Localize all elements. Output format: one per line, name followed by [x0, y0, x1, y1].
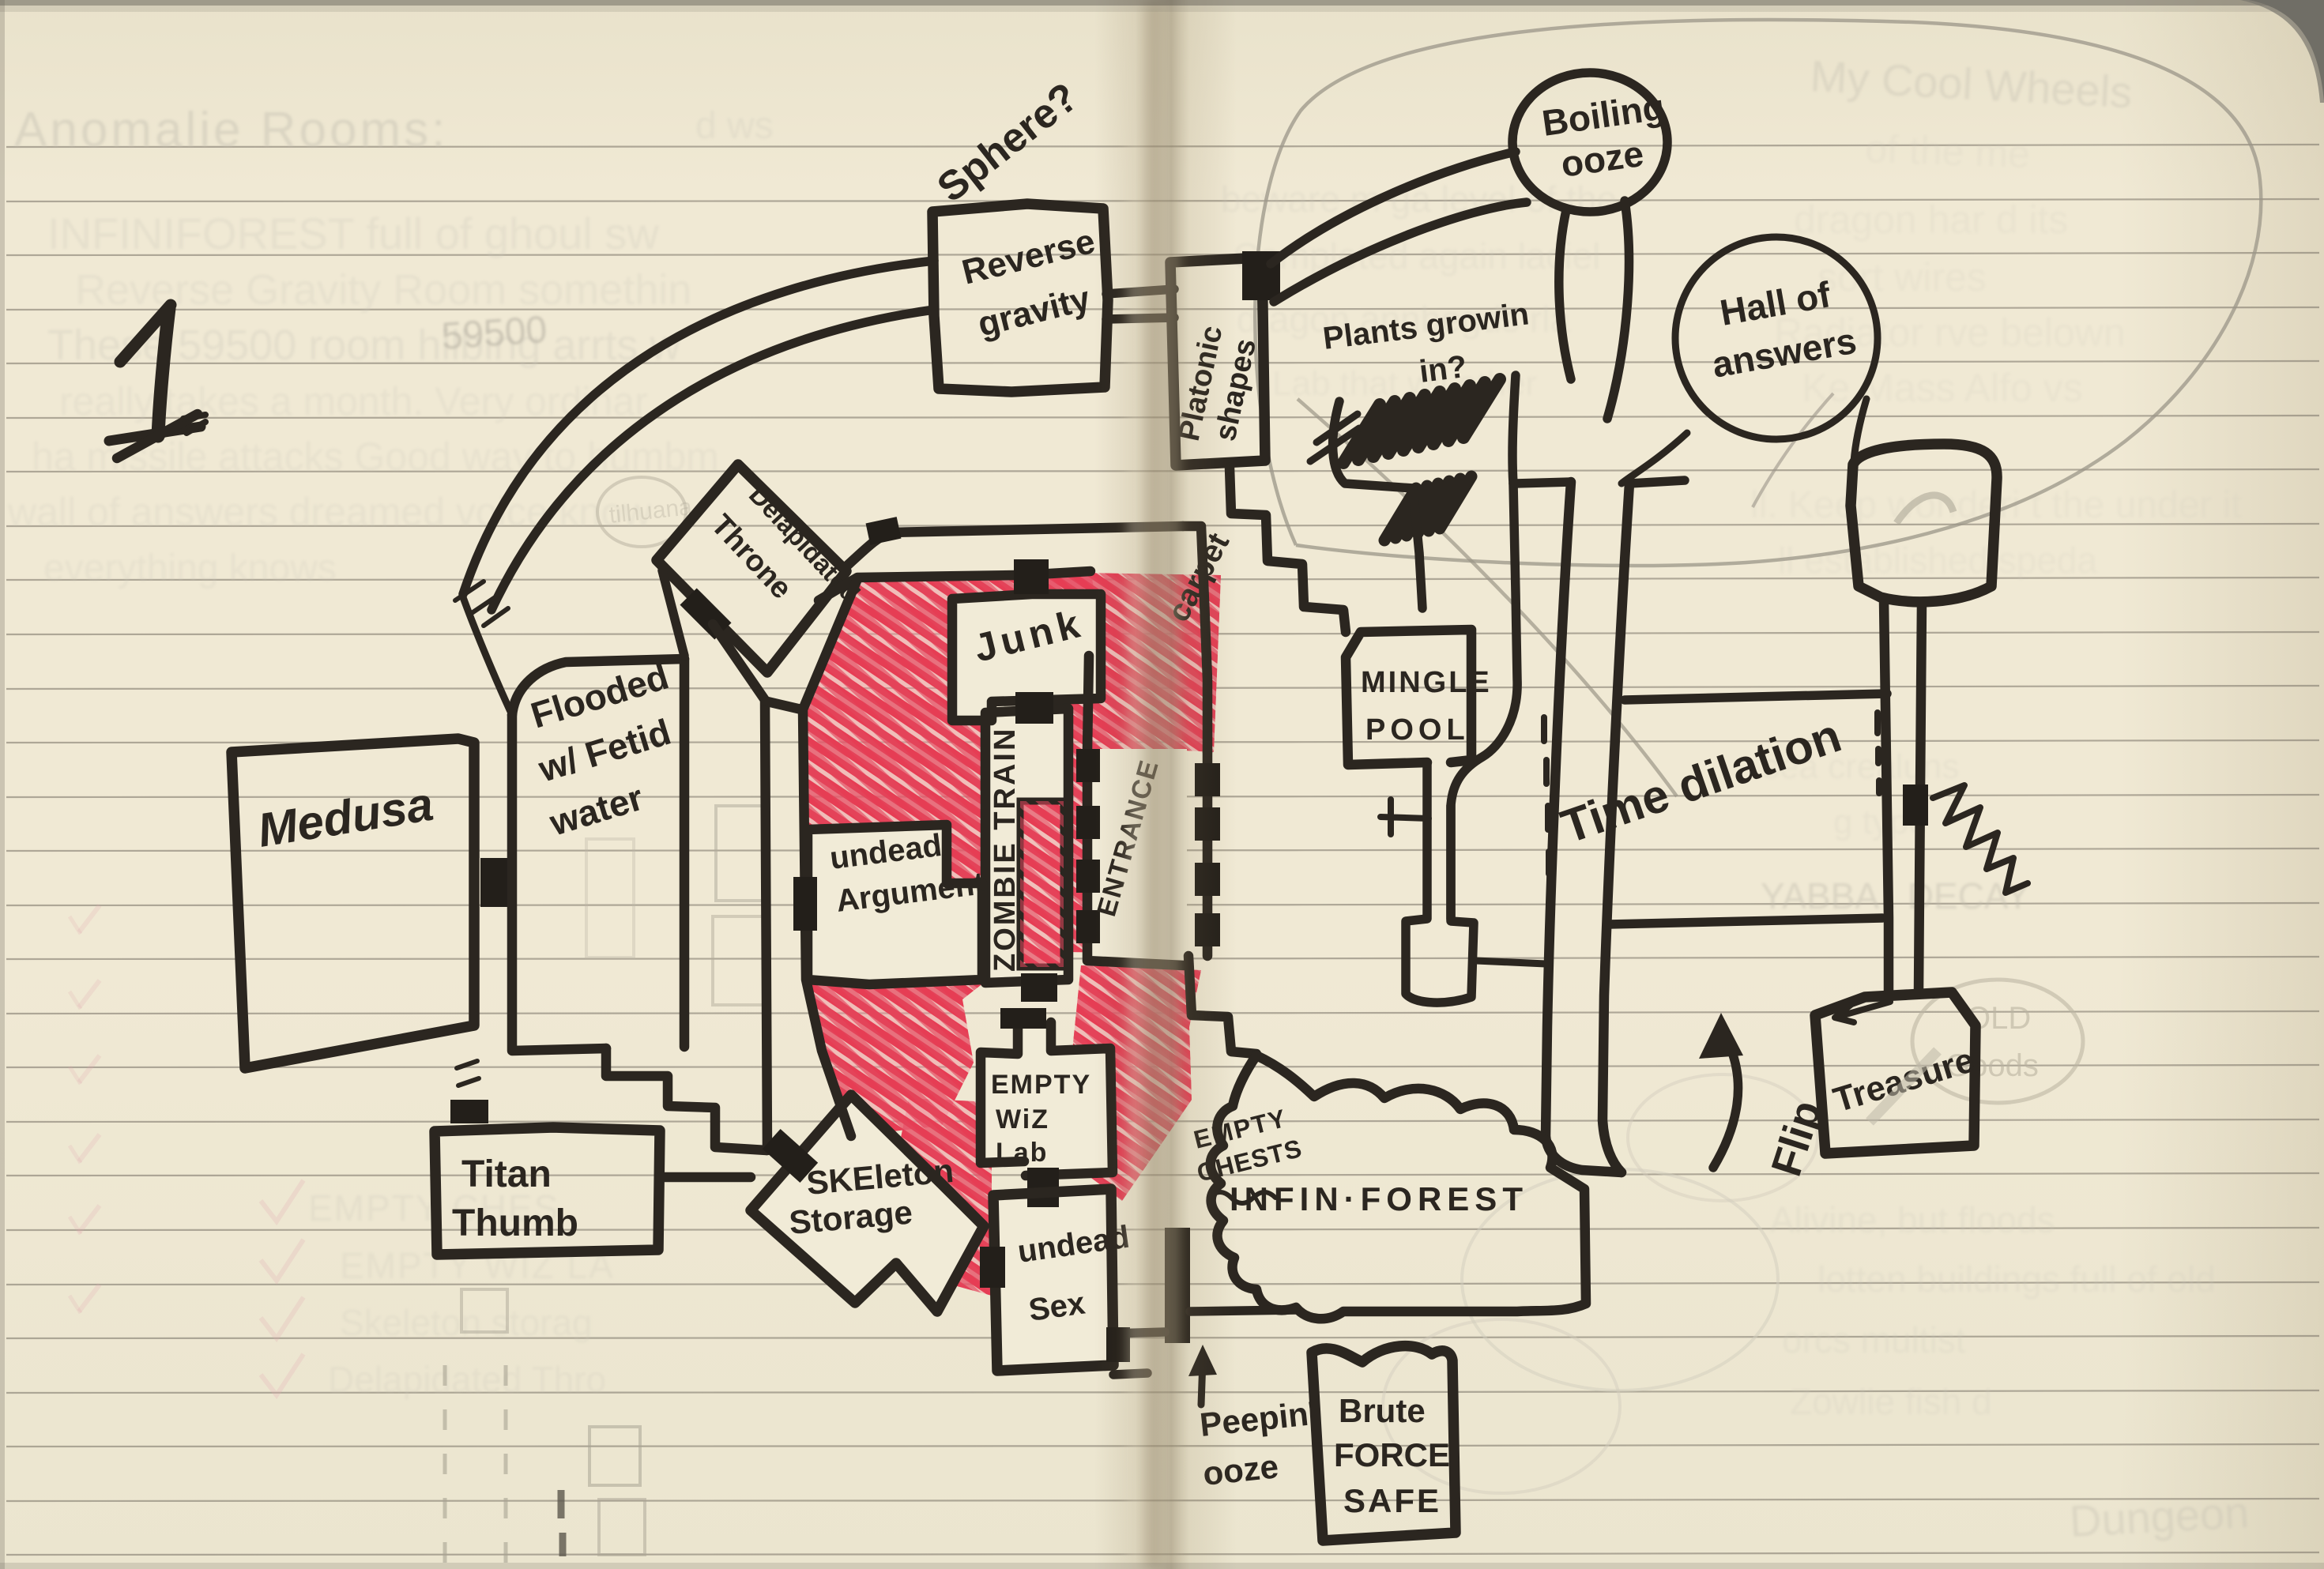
- svg-text:Zowlie fish d: Zowlie fish d: [1790, 1381, 1992, 1422]
- svg-text:of the me: of the me: [1865, 126, 2031, 176]
- svg-text:Thumb: Thumb: [452, 1202, 578, 1244]
- svg-text:MINGLE: MINGLE: [1361, 666, 1492, 699]
- svg-text:Ke Mass Alfo vs: Ke Mass Alfo vs: [1802, 366, 2083, 410]
- svg-text:59500: 59500: [440, 309, 548, 358]
- svg-text:Anomalie Rooms:: Anomalie Rooms:: [14, 103, 448, 157]
- svg-text:Lab: Lab: [996, 1138, 1048, 1168]
- svg-text:FORCE: FORCE: [1334, 1436, 1450, 1473]
- svg-text:Delapidated Thro: Delapidated Thro: [328, 1359, 606, 1400]
- svg-text:dragon har d its: dragon har d its: [1794, 198, 2068, 242]
- svg-text:d ws: d ws: [695, 105, 774, 147]
- svg-text:Alivine, but floods: Alivine, but floods: [1770, 1199, 2055, 1240]
- svg-text:POOL: POOL: [1365, 713, 1470, 747]
- svg-text:ll established speda: ll established speda: [1778, 540, 2097, 581]
- svg-text:Titan: Titan: [461, 1153, 552, 1195]
- svg-text:orcs multist: orcs multist: [1782, 1319, 1966, 1360]
- svg-text:ZOMBIE TRAIN: ZOMBIE TRAIN: [989, 727, 1022, 972]
- svg-text:in?: in?: [1418, 349, 1469, 389]
- svg-text:lotten buildings full of old: lotten buildings full of old: [1817, 1259, 2216, 1300]
- svg-text:SAFE: SAFE: [1343, 1482, 1441, 1519]
- svg-text:WiZ: WiZ: [996, 1104, 1049, 1134]
- svg-text:INFINIFOREST full of ghoul sw: INFINIFOREST full of ghoul sw: [47, 209, 659, 258]
- svg-text:INFIN·FOREST: INFIN·FOREST: [1230, 1180, 1528, 1217]
- svg-text:EMPTY: EMPTY: [991, 1070, 1091, 1100]
- svg-text:Brute: Brute: [1339, 1392, 1426, 1429]
- svg-text:everything knows: everything knows: [43, 547, 337, 589]
- svg-text:really takes a month. Very: really takes a month. Very ordinar: [59, 379, 648, 423]
- svg-text:Dungeon: Dungeon: [2068, 1487, 2250, 1546]
- svg-text:YABBA . DECAY: YABBA . DECAY: [1761, 875, 2030, 916]
- svg-text:Skeleton storag: Skeleton storag: [340, 1302, 593, 1343]
